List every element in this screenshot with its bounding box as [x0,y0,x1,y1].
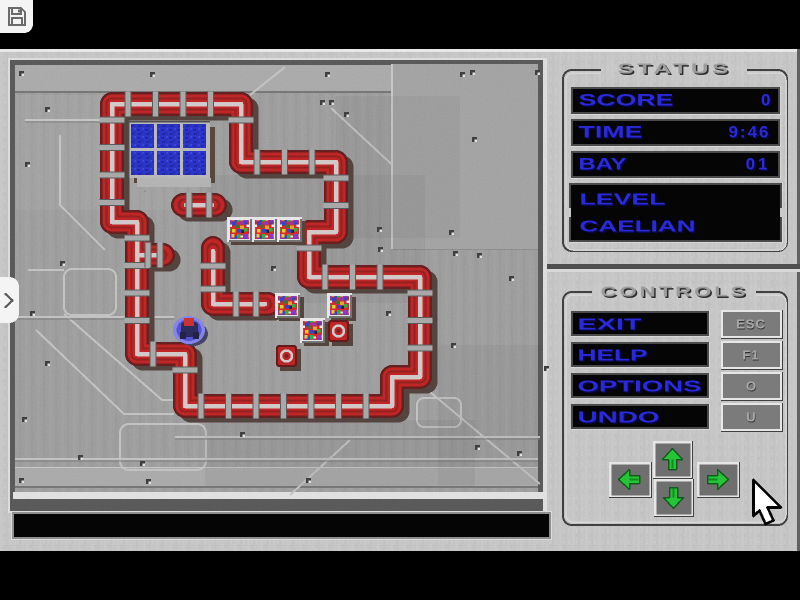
svg-text:TIME: TIME [579,123,643,142]
svg-text:STATUS: STATUS [618,61,732,78]
svg-text:EXIT: EXIT [578,317,642,334]
svg-text:U: U [746,410,755,425]
svg-text:01: 01 [746,155,771,174]
svg-text:CAELIAN: CAELIAN [580,219,696,236]
svg-text:CONTROLS: CONTROLS [601,284,749,301]
svg-text:F1: F1 [742,348,759,363]
svg-text:SCORE: SCORE [579,91,674,110]
svg-text:HELP: HELP [578,348,649,365]
svg-text:BAY: BAY [579,155,628,174]
svg-text:O: O [746,379,756,394]
svg-text:OPTIONS: OPTIONS [578,379,703,396]
svg-text:ESC: ESC [736,317,766,332]
svg-text:9:46: 9:46 [728,123,770,142]
svg-text:LEVEL: LEVEL [580,192,666,209]
svg-text:UNDO: UNDO [578,410,660,427]
svg-text:0: 0 [761,91,770,110]
